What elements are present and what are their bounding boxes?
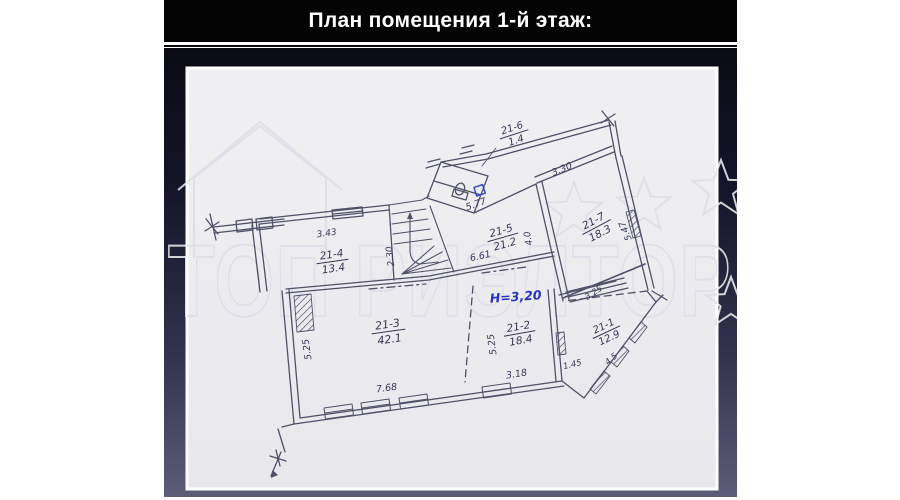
floor-plan-scene: ТОП РИЭЛТОР: [164, 0, 737, 497]
title-separator-line: [164, 42, 737, 49]
page-root: { "slide": { "title": "План помещения 1-…: [0, 0, 900, 500]
title-bar: План помещения 1-й этаж:: [164, 0, 737, 42]
presentation-slide: План помещения 1-й этаж: ТОП РИЭЛТОР: [164, 0, 737, 497]
page-title: План помещения 1-й этаж:: [309, 9, 593, 33]
